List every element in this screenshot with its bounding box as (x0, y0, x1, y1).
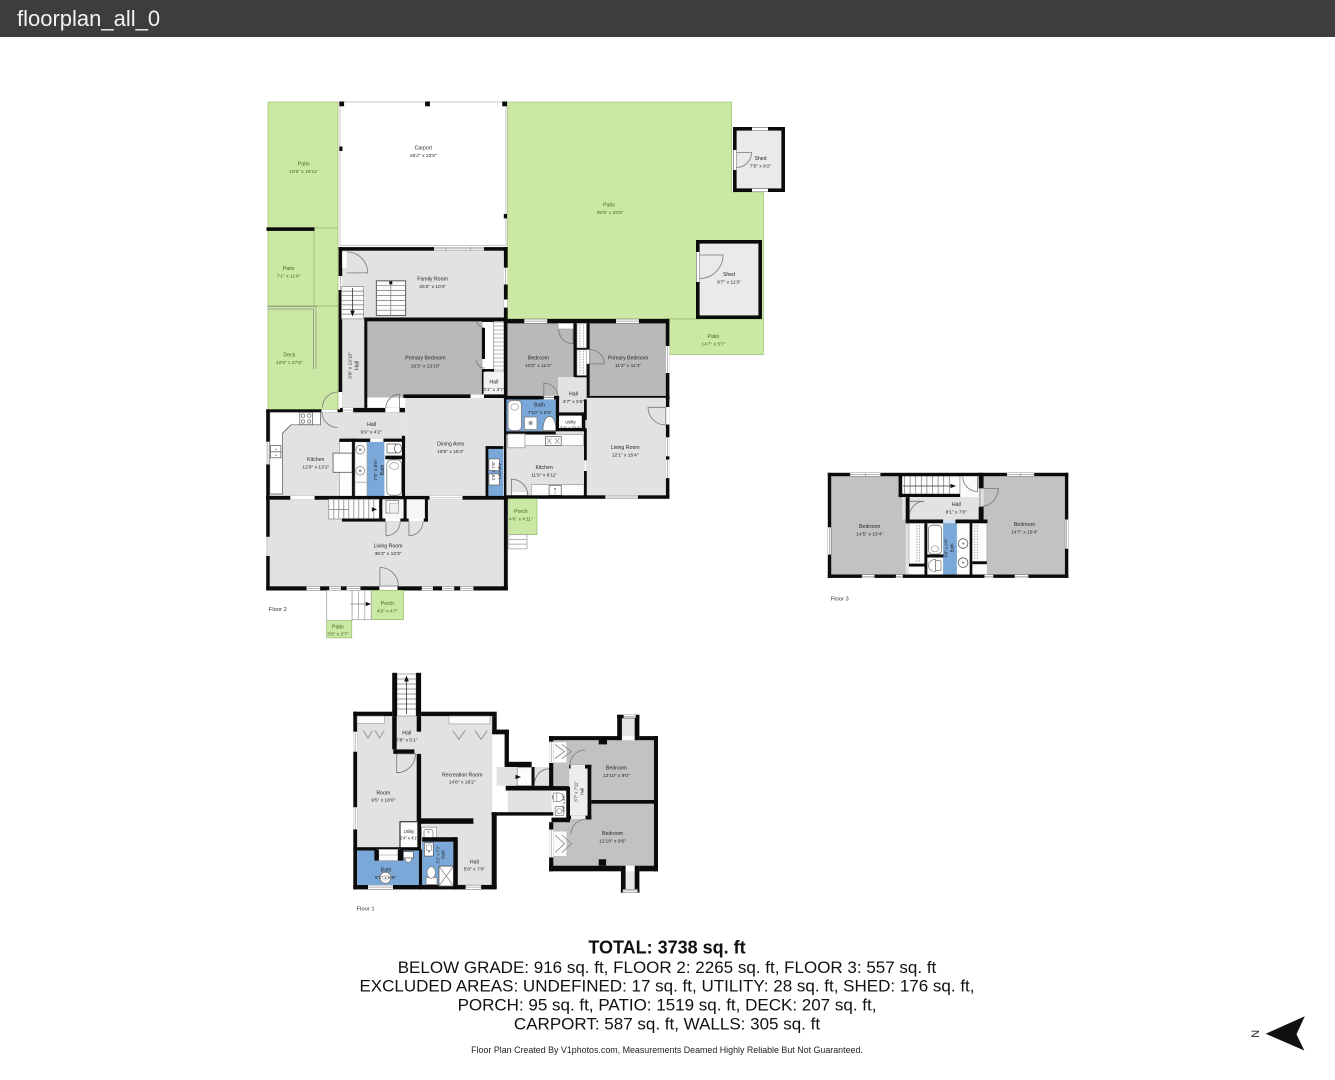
svg-text:Floor Plan Created By V1photos: Floor Plan Created By V1photos.com, Meas… (471, 1045, 863, 1055)
svg-text:2'4" x 4'1": 2'4" x 4'1" (400, 836, 419, 841)
svg-text:Hall: Hall (952, 502, 961, 508)
svg-text:Bath: Bath (950, 543, 955, 552)
svg-text:Floor 1: Floor 1 (357, 906, 375, 912)
svg-text:36'3" x 13'3": 36'3" x 13'3" (375, 551, 402, 557)
svg-text:Shed: Shed (754, 156, 766, 162)
svg-text:Utility: Utility (565, 420, 576, 425)
svg-text:14'7" x 15'4": 14'7" x 15'4" (1011, 530, 1038, 536)
svg-text:9'5" x 18'0": 9'5" x 18'0" (371, 798, 395, 804)
svg-text:Hall: Hall (367, 422, 376, 428)
svg-text:Family Room: Family Room (417, 277, 448, 283)
svg-text:14'5" x 15'4": 14'5" x 15'4" (856, 532, 883, 538)
svg-text:12'1" x 15'4": 12'1" x 15'4" (612, 452, 639, 458)
svg-text:7'10" x 5'6": 7'10" x 5'6" (528, 410, 552, 416)
svg-text:Floor 2: Floor 2 (269, 607, 287, 613)
svg-text:EXCLUDED AREAS: UNDEFINED: 17: EXCLUDED AREAS: UNDEFINED: 17 sq. ft, UT… (359, 977, 974, 996)
svg-text:Floor 3: Floor 3 (831, 597, 849, 603)
svg-text:39'8" x 33'6": 39'8" x 33'6" (597, 210, 624, 216)
svg-text:12'10" x 9'6": 12'10" x 9'6" (599, 838, 626, 844)
svg-text:2'6" x 4'6": 2'6" x 4'6" (561, 794, 566, 812)
svg-text:Bath: Bath (441, 849, 446, 858)
svg-text:3'9" x 2'7": 3'9" x 2'7" (327, 632, 349, 638)
svg-text:Bedroom: Bedroom (859, 524, 880, 530)
svg-text:10'9" x 19'11": 10'9" x 19'11" (289, 169, 318, 175)
svg-text:Hall: Hall (569, 392, 578, 398)
svg-text:Porch: Porch (381, 601, 395, 607)
svg-text:Primary Bedroom: Primary Bedroom (405, 356, 445, 362)
svg-text:Patio: Patio (707, 334, 719, 340)
svg-text:Bath: Bath (381, 868, 392, 874)
svg-text:9'9" x 4'2": 9'9" x 4'2" (361, 430, 383, 436)
svg-text:floorplan_all_0: floorplan_all_0 (17, 6, 160, 31)
svg-text:7'6" x 8'6": 7'6" x 8'6" (373, 459, 379, 481)
svg-text:25'2" x 10'4": 25'2" x 10'4" (419, 284, 446, 290)
svg-text:9'1" x 5'9": 9'1" x 5'9" (375, 875, 397, 881)
svg-text:4'7" x 5'6": 4'7" x 5'6" (563, 399, 585, 405)
svg-text:Hall: Hall (402, 731, 411, 737)
svg-text:TOTAL: 3738 sq. ft: TOTAL: 3738 sq. ft (588, 938, 745, 958)
svg-text:Hall: Hall (489, 380, 498, 386)
svg-text:Primary Bedroom: Primary Bedroom (608, 356, 648, 362)
svg-text:14'7" x 5'7": 14'7" x 5'7" (701, 342, 725, 348)
svg-text:2'9" x 7'6": 2'9" x 7'6" (491, 461, 496, 480)
svg-text:Deck: Deck (283, 353, 295, 359)
svg-text:Recreation Room: Recreation Room (442, 773, 482, 779)
svg-text:5'0" x 7'0": 5'0" x 7'0" (464, 867, 486, 873)
svg-text:10'2" x 11'4": 10'2" x 11'4" (525, 363, 552, 369)
svg-text:7'8" x 5'1": 7'8" x 5'1" (396, 738, 418, 744)
svg-text:11'2" x 11'4": 11'2" x 11'4" (615, 363, 641, 369)
svg-text:3'1" x 3'7": 3'1" x 3'7" (483, 387, 505, 393)
svg-text:Porch: Porch (514, 509, 528, 515)
svg-text:7'1" x 11'8": 7'1" x 11'8" (277, 274, 301, 280)
svg-text:Shed: Shed (723, 272, 735, 278)
svg-text:Bedroom: Bedroom (1014, 522, 1035, 528)
svg-text:3'8" x 13'10": 3'8" x 13'10" (348, 352, 354, 379)
svg-text:Hall: Hall (470, 860, 479, 866)
svg-text:12'10" x 9'0": 12'10" x 9'0" (603, 773, 630, 779)
svg-text:Hall: Hall (355, 361, 361, 370)
svg-text:Living Room: Living Room (611, 445, 640, 451)
svg-text:4'9" x 4'7": 4'9" x 4'7" (377, 609, 399, 615)
svg-text:Bedroom: Bedroom (602, 831, 623, 837)
svg-text:Room: Room (376, 791, 390, 797)
svg-text:Bath: Bath (380, 465, 386, 476)
svg-text:8'1" x 7'0": 8'1" x 7'0" (946, 510, 968, 516)
svg-text:12'9" x 13'1": 12'9" x 13'1" (302, 465, 329, 471)
svg-text:11'9" x 9'11": 11'9" x 9'11" (531, 472, 557, 478)
svg-text:Patio: Patio (283, 266, 295, 272)
svg-text:6'8" x 9'8": 6'8" x 9'8" (944, 538, 949, 557)
svg-text:Bedroom: Bedroom (528, 356, 549, 362)
svg-text:Patio: Patio (298, 162, 310, 168)
svg-text:3'2" x 7'2": 3'2" x 7'2" (436, 845, 441, 864)
svg-text:Bedroom: Bedroom (606, 766, 627, 772)
svg-text:7'5" x 9'2": 7'5" x 9'2" (750, 164, 772, 170)
svg-text:6'7" x 7'11": 6'7" x 7'11" (574, 781, 579, 802)
svg-text:Patio: Patio (332, 625, 344, 631)
svg-text:BELOW GRADE: 916 sq. ft, FLOOR: BELOW GRADE: 916 sq. ft, FLOOR 2: 2265 s… (398, 958, 937, 977)
svg-text:Living Room: Living Room (374, 543, 403, 549)
svg-text:Hall: Hall (580, 788, 585, 795)
svg-text:Bath: Bath (534, 403, 545, 409)
svg-text:N: N (1250, 1030, 1262, 1038)
svg-text:Laundry: Laundry (497, 462, 502, 478)
svg-text:PORCH: 95 sq. ft, PATIO: 1519: PORCH: 95 sq. ft, PATIO: 1519 sq. ft, DE… (458, 996, 877, 1015)
svg-text:4'6" x 4'11": 4'6" x 4'11" (509, 517, 533, 523)
svg-text:Kitchen: Kitchen (535, 465, 552, 471)
svg-text:14'8" x 19'2": 14'8" x 19'2" (449, 780, 476, 786)
svg-text:26'2" x 22'5": 26'2" x 22'5" (410, 153, 437, 159)
svg-text:10'9" x 27'6": 10'9" x 27'6" (276, 360, 303, 366)
svg-text:Dining Area: Dining Area (437, 441, 464, 447)
svg-text:19'3" x 13'10": 19'3" x 13'10" (411, 364, 441, 370)
svg-text:9'7" x 11'3": 9'7" x 11'3" (717, 280, 741, 286)
svg-text:Utility: Utility (404, 829, 415, 834)
svg-text:CARPORT: 587 sq. ft, WALLS: 30: CARPORT: 587 sq. ft, WALLS: 305 sq. ft (514, 1014, 820, 1033)
svg-text:Patio: Patio (603, 203, 615, 209)
svg-text:Carport: Carport (415, 146, 433, 152)
svg-text:Kitchen: Kitchen (307, 457, 324, 463)
svg-text:15'5" x 15'4": 15'5" x 15'4" (437, 449, 464, 455)
